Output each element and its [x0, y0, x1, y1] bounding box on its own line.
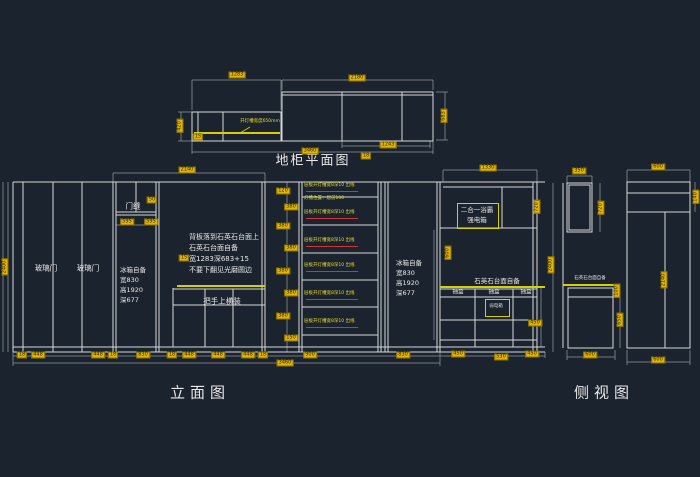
dim-label: 1283: [229, 72, 246, 79]
led-groove-line: [306, 327, 358, 328]
dim-label: 530: [494, 354, 508, 361]
dim-label: 380: [284, 204, 298, 211]
glass-door-label-1: 玻璃门: [35, 264, 58, 272]
shelf-groove-note: 层板开灯槽宽8深10 出线: [304, 239, 355, 244]
back-panel-line3: 宽1283深683+15: [189, 254, 259, 265]
led-groove-line: [306, 218, 358, 219]
fridge-right-line4: 深677: [396, 288, 422, 298]
fridge-left-note: 冰箱自备 宽830 高1920 深677: [120, 265, 146, 305]
dim-label: 600: [583, 352, 597, 359]
dim-label: 448: [182, 352, 196, 359]
drawer-label-2: 抽盒: [488, 290, 499, 296]
dim-label: 120: [276, 188, 290, 195]
dim-label: 18: [108, 352, 118, 359]
dim-label: 600: [651, 164, 665, 171]
bath-heater-box: [457, 203, 499, 229]
dim-label: 720: [534, 200, 541, 214]
led-groove-line: [306, 246, 358, 247]
dim-label: 380: [276, 313, 290, 320]
cad-canvas[interactable]: 地柜平面图 开灯槽宽度650mm 玻璃门 玻璃门 门缝 冰箱自备 宽830 高1…: [0, 0, 700, 477]
dim-label: 448: [211, 352, 225, 359]
shelf-groove-note: 层板开灯槽宽8深10 出线: [304, 184, 355, 189]
dim-label: 2180: [349, 75, 366, 82]
dim-label: 600: [445, 246, 452, 260]
cabinet-outlines: [13, 92, 690, 352]
dim-label: 448: [91, 352, 105, 359]
back-panel-line2: 石英石台面自备: [189, 243, 259, 254]
led-groove-line: [306, 191, 358, 192]
dim-label: 18: [258, 352, 268, 359]
dim-label: 1243: [380, 142, 397, 149]
dim-label: 2400: [2, 259, 9, 276]
dim-label: 650: [617, 313, 624, 327]
shelf-groove-note: 层板开灯槽宽8深10 出线: [304, 292, 355, 297]
dim-label: 380: [276, 268, 290, 275]
fridge-left-line2: 宽830: [120, 275, 146, 285]
dim-label: 595: [120, 219, 134, 226]
drawer-label-3: 抽盒: [520, 290, 531, 296]
fridge-right-note: 冰箱自备 宽830 高1920 深677: [396, 258, 422, 298]
fridge-left-line4: 深677: [120, 295, 146, 305]
plan-light-groove-note: 开灯槽宽度650mm: [240, 120, 280, 125]
countertop-note: 石英石台面自备: [474, 278, 520, 285]
back-panel-note: 背板落到石英石台面上 石英石台面自备 宽1283深683+15 不要下翻见光磨圆…: [189, 232, 259, 276]
dim-label: 18: [167, 352, 177, 359]
shelf-groove-note: 层板开灯槽宽8深10 出线: [304, 264, 355, 269]
dim-label: 380: [284, 245, 298, 252]
led-groove-line: [306, 299, 358, 300]
dim-label: 18: [361, 153, 371, 160]
led-groove-line: [306, 271, 358, 272]
fridge-left-line1: 冰箱自备: [120, 265, 146, 275]
dim-label: 15: [193, 134, 203, 141]
back-panel-line4: 不要下翻见光磨圆边: [189, 265, 259, 276]
dim-label: 100: [614, 284, 621, 298]
dim-label: 3460: [302, 148, 319, 155]
dim-label: 2140: [661, 272, 668, 289]
dim-label: 450: [525, 351, 539, 358]
dim-label: 900: [303, 352, 317, 359]
dim-label: 448: [241, 352, 255, 359]
weak-current-box: [485, 299, 510, 317]
drawer-label-1: 抽盒: [452, 290, 463, 296]
dim-label: 50: [147, 197, 157, 204]
dim-label: 420: [177, 119, 184, 133]
dim-label: 2400: [548, 257, 555, 274]
dim-label: 450: [451, 351, 465, 358]
handle-note: 把手上横装: [203, 297, 241, 305]
side-countertop-note: 石英石台面自备: [574, 277, 606, 282]
fridge-left-line3: 高1920: [120, 285, 146, 295]
dim-label: 140: [693, 190, 700, 204]
dim-label: 380: [276, 223, 290, 230]
dim-label: 350: [572, 168, 586, 175]
dim-label: 18: [17, 352, 27, 359]
dim-label: 150: [284, 335, 298, 342]
back-panel-line1: 背板落到石英石台面上: [189, 232, 259, 243]
dim-label: 1330: [480, 165, 497, 172]
dim-label: 3460: [277, 360, 294, 367]
shelf-groove-note: 层板开灯槽宽8深10 出线: [304, 320, 355, 325]
side-view-title: 侧视图: [574, 386, 634, 401]
dim-label: 720: [598, 201, 605, 215]
dim-label: 2140: [179, 167, 196, 174]
fridge-right-line3: 高1920: [396, 278, 422, 288]
glass-door-label-2: 玻璃门: [77, 264, 100, 272]
dim-label: 380: [284, 290, 298, 297]
dim-label: 15: [179, 255, 189, 262]
fridge-right-line2: 宽830: [396, 268, 422, 278]
fridge-right-line1: 冰箱自备: [396, 258, 422, 268]
plan-view-title: 地柜平面图: [275, 155, 350, 168]
shelf-groove-note-line2: 灯槽位置：居前100: [304, 197, 344, 202]
elevation-title: 立面图: [170, 386, 230, 401]
dim-label: 450: [528, 320, 542, 327]
dim-label: 830: [396, 352, 410, 359]
shelf-groove-note: 层板开灯槽宽8深10 出线: [304, 211, 355, 216]
dim-label: 448: [31, 352, 45, 359]
dim-label: 830: [136, 352, 150, 359]
dim-label: 595: [144, 219, 158, 226]
dim-label: 683: [441, 109, 448, 123]
door-gap-label: 门缝: [126, 202, 141, 210]
dim-label: 600: [651, 357, 665, 364]
